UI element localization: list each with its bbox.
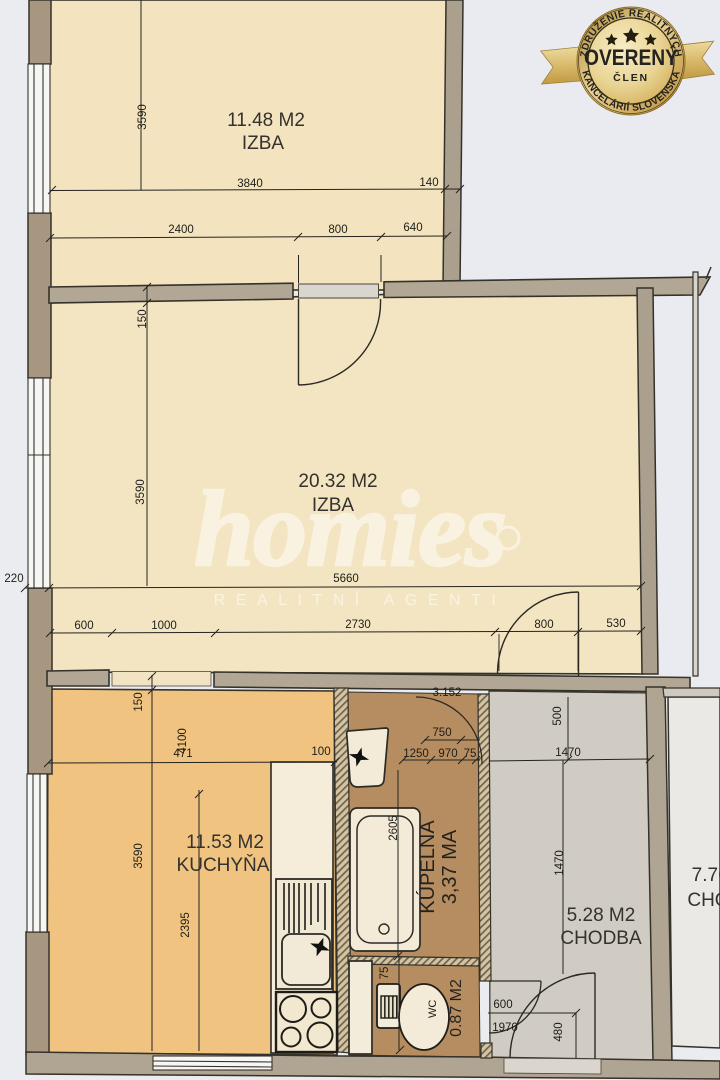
svg-text:3590: 3590 [135,479,147,505]
svg-text:75: 75 [379,967,391,980]
svg-text:1000: 1000 [151,620,177,632]
svg-text:2395: 2395 [180,912,192,938]
svg-text:530: 530 [606,618,625,630]
svg-text:750: 750 [432,727,451,739]
svg-text:IZBA: IZBA [242,133,285,154]
svg-text:500: 500 [552,706,564,725]
svg-text:2400: 2400 [168,224,194,236]
svg-text:3.152: 3.152 [433,687,462,699]
svg-text:3590: 3590 [137,104,149,130]
svg-text:1250: 1250 [403,748,429,760]
svg-text:11.48 M2: 11.48 M2 [227,110,305,131]
svg-text:OVERENÝ: OVERENÝ [584,45,678,70]
svg-text:150: 150 [137,309,149,328]
svg-text:150: 150 [133,692,145,711]
svg-text:0.87 M2: 0.87 M2 [448,979,465,1037]
svg-text:1970: 1970 [492,1022,518,1034]
svg-text:970: 970 [438,748,457,760]
svg-text:800: 800 [534,619,553,631]
svg-text:600: 600 [493,999,512,1011]
svg-text:1470: 1470 [555,747,581,759]
svg-text:75: 75 [464,748,477,760]
svg-text:2730: 2730 [345,619,371,631]
svg-text:KUCHYŇA: KUCHYŇA [177,854,270,876]
svg-text:480: 480 [553,1022,565,1041]
svg-text:1470: 1470 [554,850,566,876]
svg-text:CHODBA: CHODBA [560,928,642,949]
svg-text:471: 471 [173,748,192,760]
svg-text:220: 220 [4,573,23,585]
svg-text:homies: homies [194,470,506,589]
svg-text:CHODBA: CHODBA [687,890,720,911]
svg-text:KÚPELNA: KÚPELNA [416,820,439,914]
svg-text:REALITNÍ AGENTI: REALITNÍ AGENTI [214,590,507,609]
svg-text:3840: 3840 [237,178,263,190]
svg-text:3590: 3590 [133,843,145,869]
svg-text:WC: WC [427,1000,439,1018]
svg-text:2605: 2605 [388,815,400,841]
svg-text:640: 640 [403,222,422,234]
svg-text:3,37 MA: 3,37 MA [439,829,461,904]
svg-text:5.28 M2: 5.28 M2 [567,905,636,926]
svg-text:800: 800 [328,224,347,236]
svg-text:600: 600 [74,620,93,632]
svg-text:7.76 M2: 7.76 M2 [692,865,720,886]
svg-text:11.53 M2: 11.53 M2 [186,832,264,853]
svg-text:100: 100 [311,746,330,758]
svg-text:ČLEN: ČLEN [613,71,649,84]
svg-text:140: 140 [419,177,438,189]
